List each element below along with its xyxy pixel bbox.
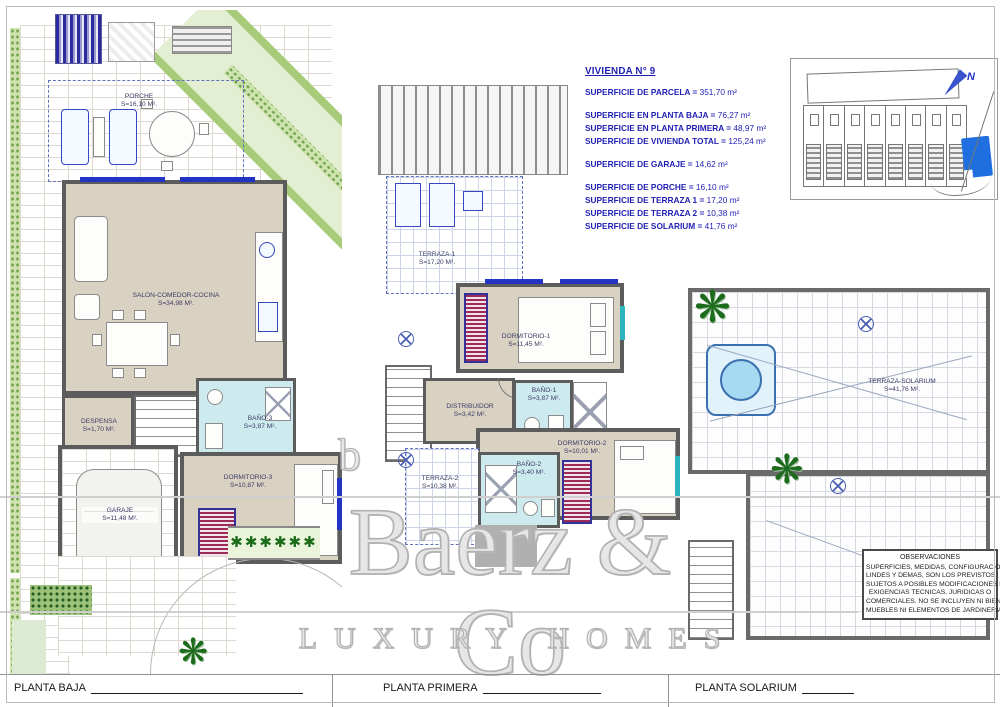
room-label-terraza1: TERRAZA-1 S=17,20 M².: [395, 251, 479, 267]
surface-label: SUPERFICIE DE PORCHE =: [585, 182, 694, 192]
surface-line: SUPERFICIE DE PARCELA = 351,70 m²: [585, 86, 810, 99]
palm-tree-icon: ❋: [770, 450, 804, 490]
surface-line: SUPERFICIE DE TERRAZA 1 = 17,20 m²: [585, 194, 810, 207]
window-strip: [180, 177, 255, 182]
surface-line: SUPERFICIE DE PORCHE = 16,10 m²: [585, 181, 810, 194]
room-label-bano3: BAÑO-3 S=3,87 M².: [227, 415, 293, 431]
window-strip: [560, 279, 618, 284]
plan-caption-planta-solarium: PLANTA SOLARIUM: [695, 682, 854, 694]
room-label-dormitorio1: DORMITORIO-1 S=11,45 M².: [478, 333, 574, 349]
room-label-bano1: BAÑO-1 S=3,87 M².: [518, 387, 570, 403]
palm-tree-icon: ❋: [694, 286, 731, 330]
observations-line: SUPERFICIES, MEDIDAS, CONFIGURACION,: [866, 564, 994, 573]
surface-group: SUPERFICIE EN PLANTA BAJA = 76,27 m² SUP…: [585, 109, 810, 148]
site-curved-boundary: [931, 163, 991, 196]
caption-text: PLANTA BAJA: [14, 682, 86, 694]
room-label-dormitorio3: DORMITORIO-3 S=10,87 M².: [200, 474, 296, 490]
room-area: S=11,45 M².: [478, 341, 574, 349]
pergola-roof: [55, 14, 102, 64]
dining-chair: [112, 368, 124, 378]
wardrobe: [464, 293, 488, 363]
site-unit: [886, 106, 906, 186]
unit-roof: [826, 144, 841, 180]
room-label-distribuidor: DISTRIBUIDOR S=3,42 M².: [428, 403, 512, 419]
room-name: DORMITORIO-1: [478, 333, 574, 341]
unit-mark: [830, 114, 839, 126]
dining-chair: [134, 310, 146, 320]
surface-line: SUPERFICIE EN PLANTA PRIMERA = 48,97 m²: [585, 122, 810, 135]
window-strip: [80, 177, 165, 182]
room-name: TERRAZA-SOLARIUM: [840, 378, 964, 386]
surface-value: 41,76 m²: [705, 221, 738, 231]
room-name: GARAJE: [82, 507, 158, 515]
watermark-monogram: b: [338, 428, 361, 481]
watermark-tagline: LUXURY HOMES: [283, 622, 753, 656]
surface-line: SUPERFICIE DE VIVIENDA TOTAL = 125,24 m²: [585, 135, 810, 148]
surface-group: SUPERFICIE DE PORCHE = 16,10 m² SUPERFIC…: [585, 181, 810, 233]
surface-label: SUPERFICIE EN PLANTA BAJA =: [585, 110, 715, 120]
surface-value: 17,20 m²: [707, 195, 740, 205]
parasol-icon: [398, 331, 414, 347]
site-unit: [865, 106, 885, 186]
room-name: DORMITORIO-3: [200, 474, 296, 482]
site-unit: [845, 106, 865, 186]
north-label: N: [967, 71, 975, 83]
unit-mark: [952, 114, 961, 126]
room-name: PORCHE: [79, 93, 199, 101]
porch-side-table: [93, 117, 105, 157]
room-label-solarium: TERRAZA-SOLARIUM S=41,76 M².: [840, 378, 964, 394]
room-area: S=11,48 M².: [82, 515, 158, 523]
surface-value: 125,24 m²: [728, 136, 765, 146]
skylight-hatch: [108, 22, 155, 62]
surface-label: SUPERFICIE DE PARCELA =: [585, 87, 697, 97]
caption-rule: [91, 684, 303, 694]
room-terraza1: TERRAZA-1 S=17,20 M².: [386, 176, 523, 294]
room-salon: SALON-COMEDOR-COCINA S=34,98 M².: [62, 180, 287, 395]
footer-divider: [332, 675, 333, 707]
parasol-icon: [398, 452, 414, 468]
room-label-bano2: BAÑO-2 S=3,40 M².: [503, 461, 555, 477]
unit-mark: [912, 114, 921, 126]
site-location-plan: N: [790, 58, 998, 200]
porch-sofa: [61, 109, 89, 165]
porch-sofa: [109, 109, 137, 165]
site-unit: [804, 106, 824, 186]
pergola-roof-below: [378, 85, 568, 175]
room-area: S=34,98 M².: [71, 300, 281, 308]
room-name: DESPENSA: [57, 418, 141, 426]
porch-round-table: [149, 111, 195, 157]
room-bano3: BAÑO-3 S=3,87 M².: [196, 378, 296, 462]
surface-value: 351,70 m²: [700, 87, 737, 97]
surface-value: 48,97 m²: [733, 123, 766, 133]
surface-group: SUPERFICIE DE GARAJE = 14,62 m²: [585, 158, 810, 171]
room-name: BAÑO-2: [503, 461, 555, 469]
caption-text: PLANTA SOLARIUM: [695, 682, 797, 694]
footer-divider: [668, 675, 669, 707]
parasol-icon: [830, 478, 846, 494]
surface-label: SUPERFICIE DE VIVIENDA TOTAL =: [585, 136, 726, 146]
window-teal-strip: [620, 306, 625, 340]
watermark-brand-name: Baerz & Co: [290, 492, 730, 692]
observations-title: OBSERVACIONES: [866, 554, 994, 563]
room-label-despensa: DESPENSA S=1,70 M².: [57, 418, 141, 434]
unit-mark: [851, 114, 860, 126]
dining-chair: [134, 368, 146, 378]
pillow: [590, 303, 606, 327]
site-unit: [906, 106, 926, 186]
unit-mark: [891, 114, 900, 126]
sheet-footer: PLANTA BAJA PLANTA PRIMERA PLANTA SOLARI…: [0, 674, 1000, 707]
surface-value: 76,27 m²: [718, 110, 751, 120]
room-area: S=3,42 M².: [428, 411, 512, 419]
room-name: DISTRIBUIDOR: [428, 403, 512, 411]
room-name: TERRAZA-1: [395, 251, 479, 259]
room-label-salon: SALON-COMEDOR-COCINA S=34,98 M².: [71, 292, 281, 308]
dining-chair: [170, 334, 180, 346]
room-label-garaje: GARAJE S=11,48 M².: [82, 507, 158, 523]
site-upper-block: [807, 68, 960, 103]
room-area: S=10,87 M².: [200, 482, 296, 490]
room-area: S=3,40 M².: [503, 469, 555, 477]
garden-bench: [172, 26, 232, 54]
observations-line: EXIGENCIAS TECNICAS, JURIDICAS O: [866, 589, 994, 598]
observations-line: MUEBLES NI ELEMENTOS DE JARDINERIA.: [866, 607, 994, 616]
room-area: S=17,20 M².: [395, 259, 479, 267]
room-name: BAÑO-3: [227, 415, 293, 423]
toilet: [207, 389, 223, 405]
plan-caption-planta-primera: PLANTA PRIMERA: [383, 682, 601, 694]
observations-line: SUJETOS A POSIBLES MODIFICACIONES POR: [866, 581, 994, 590]
room-label-porche: PORCHE S=16,10 M².: [79, 93, 199, 109]
sink: [205, 423, 223, 449]
unit-roof: [867, 144, 882, 180]
dining-chair: [112, 310, 124, 320]
unit-roof: [847, 144, 862, 180]
room-name: TERRAZA-2: [408, 475, 472, 483]
room-name: SALON-COMEDOR-COCINA: [71, 292, 281, 300]
unit-mark: [810, 114, 819, 126]
living-sofa: [74, 216, 108, 282]
dining-table: [106, 322, 168, 366]
room-label-dormitorio2: DORMITORIO-2 S=10,01 M².: [532, 440, 632, 456]
window-strip: [485, 279, 543, 284]
surface-value: 10,38 m²: [707, 208, 740, 218]
porch-chair: [199, 123, 209, 135]
window-teal-strip: [675, 456, 680, 496]
room-area: S=10,01 M².: [532, 448, 632, 456]
porch-chair: [161, 161, 173, 171]
kitchen-sink: [259, 242, 275, 258]
jacuzzi-basin: [720, 359, 762, 401]
dwelling-title: VIVIENDA N° 9: [585, 66, 810, 77]
surface-label: SUPERFICIE DE TERRAZA 1 =: [585, 195, 704, 205]
surface-line: SUPERFICIE EN PLANTA BAJA = 76,27 m²: [585, 109, 810, 122]
observations-line: LINDES Y DEMAS, SON LOS PREVISTOS,: [866, 572, 994, 581]
surface-label: SUPERFICIE EN PLANTA PRIMERA =: [585, 123, 731, 133]
unit-mark: [871, 114, 880, 126]
surface-label: SUPERFICIE DE SOLARIUM =: [585, 221, 702, 231]
caption-rule: [483, 684, 601, 694]
pillow: [590, 331, 606, 355]
room-area: S=41,76 M².: [840, 386, 964, 394]
room-area: S=1,70 M².: [57, 426, 141, 434]
room-porche: PORCHE S=16,10 M².: [48, 80, 244, 182]
surface-line: SUPERFICIE DE TERRAZA 2 = 10,38 m²: [585, 207, 810, 220]
surface-label: SUPERFICIE DE GARAJE =: [585, 159, 693, 169]
lawn-corner: [12, 620, 46, 674]
observations-line: COMERCIALES. NO SE INCLUYEN NI BIENES: [866, 598, 994, 607]
room-name: BAÑO-1: [518, 387, 570, 395]
observations-note-box: OBSERVACIONES SUPERFICIES, MEDIDAS, CONF…: [862, 549, 998, 620]
hedge-strip-left: [10, 28, 20, 573]
caption-rule: [802, 684, 854, 694]
room-name: DORMITORIO-2: [532, 440, 632, 448]
room-area: S=3,87 M².: [518, 395, 570, 403]
plan-caption-planta-baja: PLANTA BAJA: [14, 682, 303, 694]
unit-roof: [908, 144, 923, 180]
lounger: [395, 183, 421, 227]
surface-group: SUPERFICIE DE PARCELA = 351,70 m²: [585, 86, 810, 99]
lounger: [429, 183, 455, 227]
surface-label: SUPERFICIE DE TERRAZA 2 =: [585, 208, 704, 218]
unit-roof: [806, 144, 821, 180]
surface-value: 16,10 m²: [696, 182, 729, 192]
site-unit: [824, 106, 844, 186]
unit-roof: [888, 144, 903, 180]
room-area: S=16,10 M².: [79, 101, 199, 109]
dining-chair: [92, 334, 102, 346]
room-area: S=3,87 M².: [227, 423, 293, 431]
room-dormitorio1: DORMITORIO-1 S=11,45 M².: [456, 283, 624, 373]
unit-mark: [932, 114, 941, 126]
caption-text: PLANTA PRIMERA: [383, 682, 478, 694]
solarium-terrace-upper: TERRAZA-SOLARIUM S=41,76 M².: [688, 288, 990, 474]
palm-tree-icon: ❋: [178, 634, 208, 670]
surface-line: SUPERFICIE DE SOLARIUM = 41,76 m²: [585, 220, 810, 233]
surface-line: SUPERFICIE DE GARAJE = 14,62 m²: [585, 158, 810, 171]
surface-summary-block: VIVIENDA N° 9 SUPERFICIE DE PARCELA = 35…: [585, 66, 810, 243]
surface-value: 14,62 m²: [695, 159, 728, 169]
parasol-icon: [858, 316, 874, 332]
terrace-table: [463, 191, 483, 211]
